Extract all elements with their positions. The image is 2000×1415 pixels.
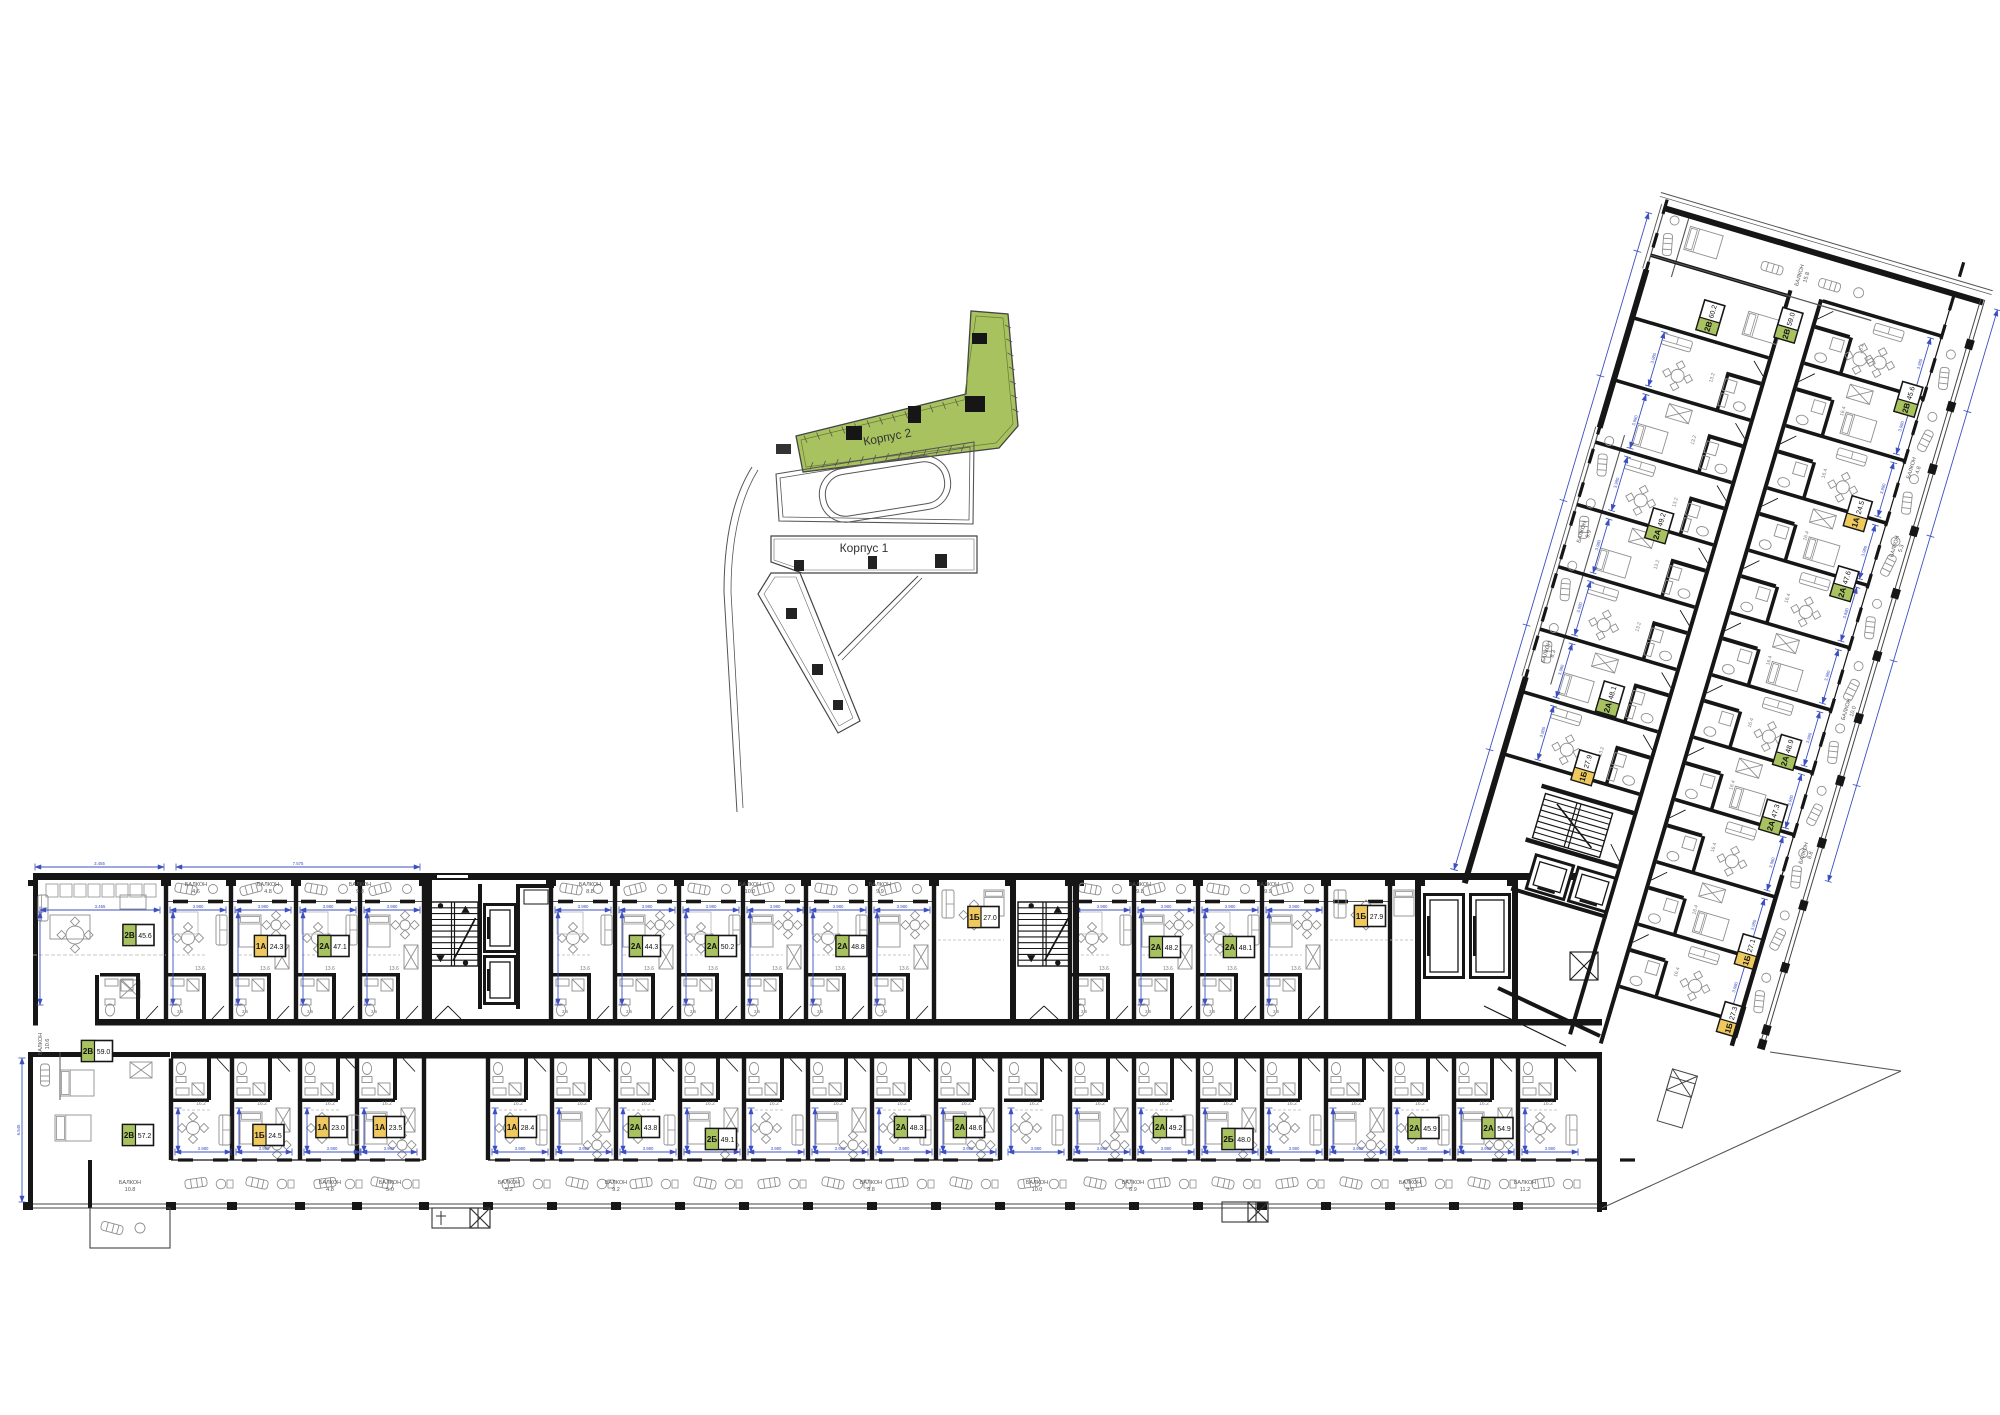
svg-text:1Б: 1Б (969, 913, 979, 922)
svg-text:3.980: 3.980 (1289, 1146, 1300, 1151)
svg-text:БАЛКОН: БАЛКОН (498, 1180, 520, 1186)
svg-text:Корпус 1: Корпус 1 (840, 541, 889, 555)
svg-text:1А: 1А (317, 1123, 327, 1132)
svg-text:БАЛКОН: БАЛКОН (349, 882, 371, 888)
svg-text:2В: 2В (124, 931, 134, 940)
svg-text:3.980: 3.980 (1417, 1146, 1428, 1151)
svg-text:3.980: 3.980 (770, 904, 781, 909)
svg-text:БАЛКОН: БАЛКОН (119, 1180, 141, 1186)
svg-text:3.6: 3.6 (307, 1009, 314, 1014)
svg-text:48.0: 48.0 (1237, 1137, 1251, 1144)
svg-text:10.0: 10.0 (745, 889, 756, 895)
svg-text:БАЛКОН: БАЛКОН (869, 882, 891, 888)
svg-text:3.980: 3.980 (706, 904, 717, 909)
svg-text:3.980: 3.980 (1097, 1146, 1108, 1151)
svg-text:3.980: 3.980 (1097, 904, 1108, 909)
svg-text:БАЛКОН: БАЛКОН (860, 1180, 882, 1186)
svg-text:3.980: 3.980 (515, 1146, 526, 1151)
svg-text:9.9: 9.9 (1264, 889, 1272, 895)
svg-text:50.2: 50.2 (721, 944, 735, 951)
svg-text:57.2: 57.2 (138, 1133, 152, 1140)
svg-text:16.2: 16.2 (641, 1101, 651, 1107)
svg-text:13.6: 13.6 (325, 966, 335, 972)
svg-text:48.3: 48.3 (910, 1125, 924, 1132)
svg-text:16.2: 16.2 (769, 1101, 779, 1107)
svg-text:16.2: 16.2 (1543, 1101, 1553, 1107)
svg-text:16.2: 16.2 (705, 1101, 715, 1107)
svg-text:2В: 2В (83, 1047, 93, 1056)
svg-text:1А: 1А (507, 1123, 517, 1132)
svg-text:23.5: 23.5 (389, 1125, 403, 1132)
svg-text:24.5: 24.5 (268, 1133, 282, 1140)
svg-text:4.8: 4.8 (326, 1187, 334, 1193)
svg-text:3.980: 3.980 (258, 904, 269, 909)
svg-text:2А: 2А (319, 942, 329, 951)
svg-text:10.8: 10.8 (125, 1187, 136, 1193)
svg-text:3.980: 3.980 (1481, 1146, 1492, 1151)
svg-text:2А: 2А (837, 942, 847, 951)
svg-text:3.980: 3.980 (1031, 1146, 1042, 1151)
svg-text:59.0: 59.0 (97, 1049, 111, 1056)
svg-text:БАЛКОН: БАЛКОН (38, 1033, 44, 1055)
svg-text:13.6: 13.6 (899, 966, 909, 972)
svg-text:БАЛКОН: БАЛКОН (319, 1180, 341, 1186)
svg-text:3.980: 3.980 (642, 904, 653, 909)
svg-text:3.6: 3.6 (242, 1009, 249, 1014)
svg-text:3.980: 3.980 (387, 904, 398, 909)
svg-text:9.2: 9.2 (612, 1187, 620, 1193)
svg-text:13.6: 13.6 (1227, 966, 1237, 972)
svg-text:3.980: 3.980 (833, 904, 844, 909)
svg-text:13.6: 13.6 (644, 966, 654, 972)
svg-text:27.0: 27.0 (983, 915, 997, 922)
svg-text:БАЛКОН: БАЛКОН (1122, 1180, 1144, 1186)
svg-text:БАЛКОН: БАЛКОН (1399, 1180, 1421, 1186)
svg-text:3.980: 3.980 (963, 1146, 974, 1151)
svg-text:13.6: 13.6 (580, 966, 590, 972)
svg-text:3.980: 3.980 (643, 1146, 654, 1151)
svg-text:48.6: 48.6 (969, 1125, 983, 1132)
svg-text:2А: 2А (631, 942, 641, 951)
svg-text:8.8: 8.8 (586, 889, 594, 895)
svg-text:9.8: 9.8 (867, 1187, 875, 1193)
svg-text:13.6: 13.6 (1163, 966, 1173, 972)
svg-text:3.455: 3.455 (95, 904, 106, 909)
svg-text:44.3: 44.3 (645, 944, 659, 951)
svg-text:16.2: 16.2 (833, 1101, 843, 1107)
svg-text:3.980: 3.980 (1161, 1146, 1172, 1151)
svg-text:13.6: 13.6 (1099, 966, 1109, 972)
svg-text:3.6: 3.6 (1209, 1009, 1216, 1014)
svg-text:3.980: 3.980 (578, 904, 589, 909)
svg-text:13.6: 13.6 (772, 966, 782, 972)
svg-text:48.2: 48.2 (1165, 945, 1179, 952)
svg-text:13.6: 13.6 (1291, 966, 1301, 972)
svg-text:2А: 2А (1155, 1123, 1165, 1132)
svg-text:16.2: 16.2 (513, 1101, 523, 1107)
svg-text:16.2: 16.2 (1029, 1101, 1039, 1107)
svg-text:9.8: 9.8 (356, 889, 364, 895)
svg-text:3.6: 3.6 (817, 1009, 824, 1014)
svg-text:3.6: 3.6 (1273, 1009, 1280, 1014)
svg-text:3.6: 3.6 (1145, 1009, 1152, 1014)
svg-text:24.3: 24.3 (270, 944, 284, 951)
svg-text:3.980: 3.980 (198, 1146, 209, 1151)
svg-text:48.1: 48.1 (1239, 945, 1253, 952)
svg-text:3.980: 3.980 (259, 1146, 270, 1151)
svg-text:3.980: 3.980 (835, 1146, 846, 1151)
svg-text:3.980: 3.980 (323, 904, 334, 909)
svg-text:3.6: 3.6 (754, 1009, 761, 1014)
svg-text:2А: 2А (896, 1123, 906, 1132)
svg-text:БАЛКОН: БАЛКОН (605, 1180, 627, 1186)
svg-text:БАЛКОН: БАЛКОН (739, 882, 761, 888)
svg-text:23.0: 23.0 (331, 1125, 345, 1132)
svg-text:3.980: 3.980 (1161, 904, 1172, 909)
svg-text:3.980: 3.980 (1545, 1146, 1556, 1151)
svg-text:БАЛКОН: БАЛКОН (1514, 1180, 1536, 1186)
svg-text:3.980: 3.980 (771, 1146, 782, 1151)
svg-text:11.2: 11.2 (1520, 1187, 1530, 1193)
svg-text:БАЛКОН: БАЛКОН (1129, 882, 1151, 888)
svg-text:БАЛКОН: БАЛКОН (1257, 882, 1279, 888)
svg-text:3.980: 3.980 (897, 904, 908, 909)
svg-text:6.9: 6.9 (1129, 1187, 1137, 1193)
svg-text:2А: 2А (1483, 1124, 1493, 1133)
svg-text:3.6: 3.6 (371, 1009, 378, 1014)
svg-text:1А: 1А (375, 1123, 385, 1132)
svg-text:16.2: 16.2 (1223, 1101, 1233, 1107)
svg-text:БАЛКОН: БАЛКОН (379, 1180, 401, 1186)
svg-text:16.2: 16.2 (1479, 1101, 1489, 1107)
svg-text:2А: 2А (955, 1123, 965, 1132)
svg-text:3.980: 3.980 (1289, 904, 1300, 909)
svg-text:БАЛКОН: БАЛКОН (257, 882, 279, 888)
svg-text:16.2: 16.2 (961, 1101, 971, 1107)
svg-text:13.6: 13.6 (260, 966, 270, 972)
svg-text:3.6: 3.6 (881, 1009, 888, 1014)
svg-text:3.980: 3.980 (1353, 1146, 1364, 1151)
svg-text:13.6: 13.6 (195, 966, 205, 972)
svg-text:3.455: 3.455 (94, 861, 105, 866)
svg-text:2А: 2А (630, 1123, 640, 1132)
svg-text:43.8: 43.8 (644, 1125, 658, 1132)
svg-text:6.545: 6.545 (16, 1124, 21, 1135)
svg-text:16.2: 16.2 (325, 1101, 335, 1107)
svg-text:3.980: 3.980 (1225, 904, 1236, 909)
svg-text:9.9: 9.9 (876, 889, 884, 895)
svg-text:16.2: 16.2 (1159, 1101, 1169, 1107)
svg-text:5.2: 5.2 (505, 1187, 513, 1193)
svg-text:16.2: 16.2 (382, 1101, 392, 1107)
svg-text:48.8: 48.8 (851, 944, 865, 951)
svg-text:7.575: 7.575 (293, 861, 304, 866)
svg-text:1Б: 1Б (254, 1131, 264, 1140)
svg-text:27.9: 27.9 (1370, 914, 1384, 921)
svg-text:45.6: 45.6 (138, 933, 152, 940)
svg-text:49.1: 49.1 (721, 1137, 735, 1144)
svg-text:47.1: 47.1 (333, 944, 347, 951)
svg-text:1Б: 1Б (1356, 912, 1366, 921)
svg-text:16.2: 16.2 (1351, 1101, 1361, 1107)
svg-text:16.2: 16.2 (1095, 1101, 1105, 1107)
svg-text:4.6: 4.6 (192, 889, 200, 895)
svg-text:49.2: 49.2 (1169, 1125, 1183, 1132)
svg-text:3.980: 3.980 (899, 1146, 910, 1151)
svg-text:3.6: 3.6 (562, 1009, 569, 1014)
svg-text:13.6: 13.6 (389, 966, 399, 972)
svg-text:БАЛКОН: БАЛКОН (579, 882, 601, 888)
svg-text:4.8: 4.8 (264, 889, 272, 895)
svg-text:54.9: 54.9 (1497, 1126, 1511, 1133)
svg-text:9.0: 9.0 (1406, 1187, 1414, 1193)
svg-text:2В: 2В (124, 1131, 134, 1140)
svg-text:45.9: 45.9 (1423, 1126, 1437, 1133)
svg-text:2А: 2А (1151, 943, 1161, 952)
svg-text:10.0: 10.0 (1032, 1187, 1043, 1193)
svg-text:13.6: 13.6 (708, 966, 718, 972)
svg-text:3.980: 3.980 (579, 1146, 590, 1151)
svg-text:3.980: 3.980 (193, 904, 204, 909)
svg-text:16.2: 16.2 (1415, 1101, 1425, 1107)
svg-text:2Б: 2Б (1223, 1135, 1233, 1144)
svg-text:2Б: 2Б (707, 1135, 717, 1144)
svg-text:2А: 2А (1409, 1124, 1419, 1133)
svg-text:16.2: 16.2 (577, 1101, 587, 1107)
svg-text:3.6: 3.6 (626, 1009, 633, 1014)
svg-text:16.2: 16.2 (897, 1101, 907, 1107)
svg-text:3.980: 3.980 (384, 1146, 395, 1151)
svg-text:БАЛКОН: БАЛКОН (1026, 1180, 1048, 1186)
svg-text:16.2: 16.2 (257, 1101, 267, 1107)
svg-text:3.6: 3.6 (690, 1009, 697, 1014)
svg-text:16.2: 16.2 (196, 1101, 206, 1107)
svg-text:9.8: 9.8 (1136, 889, 1144, 895)
svg-text:16.2: 16.2 (1287, 1101, 1297, 1107)
svg-text:13.6: 13.6 (835, 966, 845, 972)
svg-text:10.6: 10.6 (45, 1039, 51, 1050)
svg-text:1А: 1А (256, 942, 266, 951)
svg-text:3.980: 3.980 (327, 1146, 338, 1151)
svg-text:2А: 2А (707, 942, 717, 951)
svg-text:БАЛКОН: БАЛКОН (185, 882, 207, 888)
svg-text:5.0: 5.0 (386, 1187, 394, 1193)
svg-text:28.4: 28.4 (521, 1125, 535, 1132)
svg-text:2А: 2А (1225, 943, 1235, 952)
svg-text:3.6: 3.6 (1081, 1009, 1088, 1014)
svg-text:3.6: 3.6 (177, 1009, 184, 1014)
